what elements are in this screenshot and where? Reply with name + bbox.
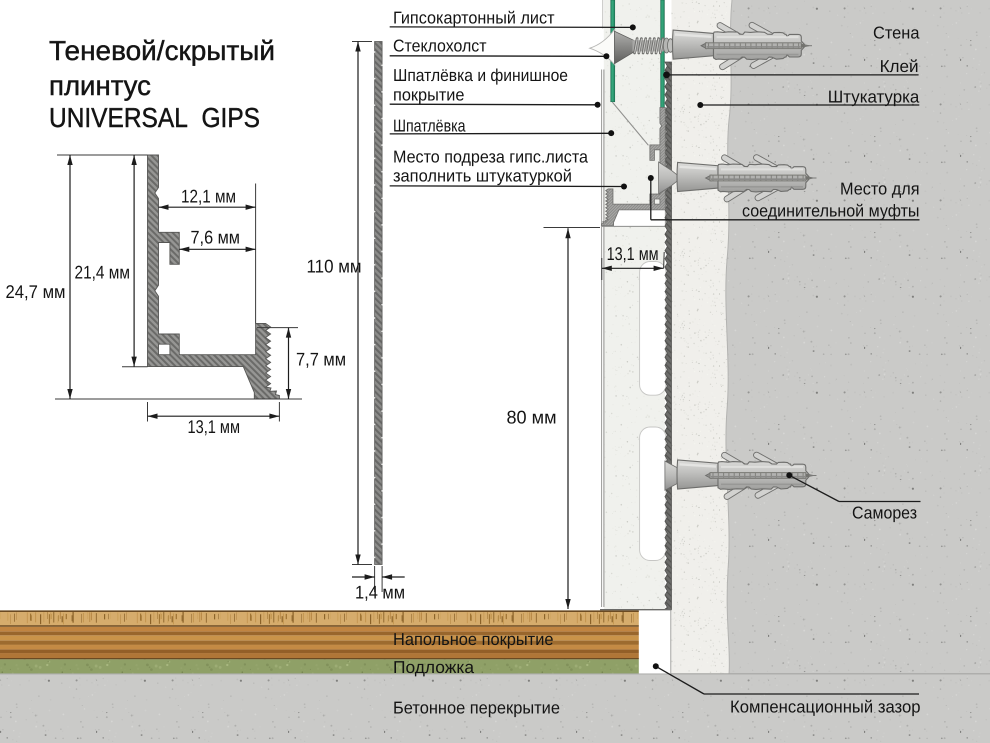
svg-text:Саморез: Саморез <box>852 503 917 523</box>
svg-text:13,1 мм: 13,1 мм <box>607 243 659 264</box>
svg-text:Стена: Стена <box>873 23 920 43</box>
svg-text:12,1 мм: 12,1 мм <box>181 186 236 207</box>
svg-text:110 мм: 110 мм <box>307 256 362 277</box>
svg-text:Компенсационный зазор: Компенсационный зазор <box>730 697 921 717</box>
svg-text:плинтус: плинтус <box>49 70 151 101</box>
svg-text:заполнить штукатуркой: заполнить штукатуркой <box>393 166 572 186</box>
svg-text:Место подреза гипс.листа: Место подреза гипс.листа <box>393 147 588 167</box>
svg-text:Штукатурка: Штукатурка <box>828 87 920 107</box>
svg-text:покрытие: покрытие <box>393 85 465 105</box>
svg-text:80 мм: 80 мм <box>507 407 557 428</box>
svg-text:Клей: Клей <box>880 56 919 76</box>
svg-text:13,1 мм: 13,1 мм <box>188 416 241 437</box>
svg-text:Место для: Место для <box>840 179 920 199</box>
svg-text:UNIVERSAL GIPS: UNIVERSAL GIPS <box>49 102 260 133</box>
svg-text:Шпатлёвка: Шпатлёвка <box>393 116 466 136</box>
svg-text:Бетонное перекрытие: Бетонное перекрытие <box>393 698 560 718</box>
svg-text:7,7 мм: 7,7 мм <box>296 349 346 370</box>
svg-text:1,4 мм: 1,4 мм <box>355 582 405 603</box>
svg-text:Шпатлёвка и финишное: Шпатлёвка и финишное <box>393 65 568 85</box>
svg-text:Гипсокартонный лист: Гипсокартонный лист <box>393 8 555 28</box>
svg-text:Напольное покрытие: Напольное покрытие <box>393 629 554 649</box>
svg-text:Стеклохолст: Стеклохолст <box>393 36 487 56</box>
svg-text:7,6 мм: 7,6 мм <box>191 227 241 248</box>
svg-text:Подложка: Подложка <box>393 657 474 677</box>
svg-text:21,4 мм: 21,4 мм <box>75 262 131 283</box>
svg-text:соединительной муфты: соединительной муфты <box>742 201 920 221</box>
svg-text:24,7 мм: 24,7 мм <box>6 281 66 302</box>
svg-text:Теневой/скрытый: Теневой/скрытый <box>49 35 275 66</box>
